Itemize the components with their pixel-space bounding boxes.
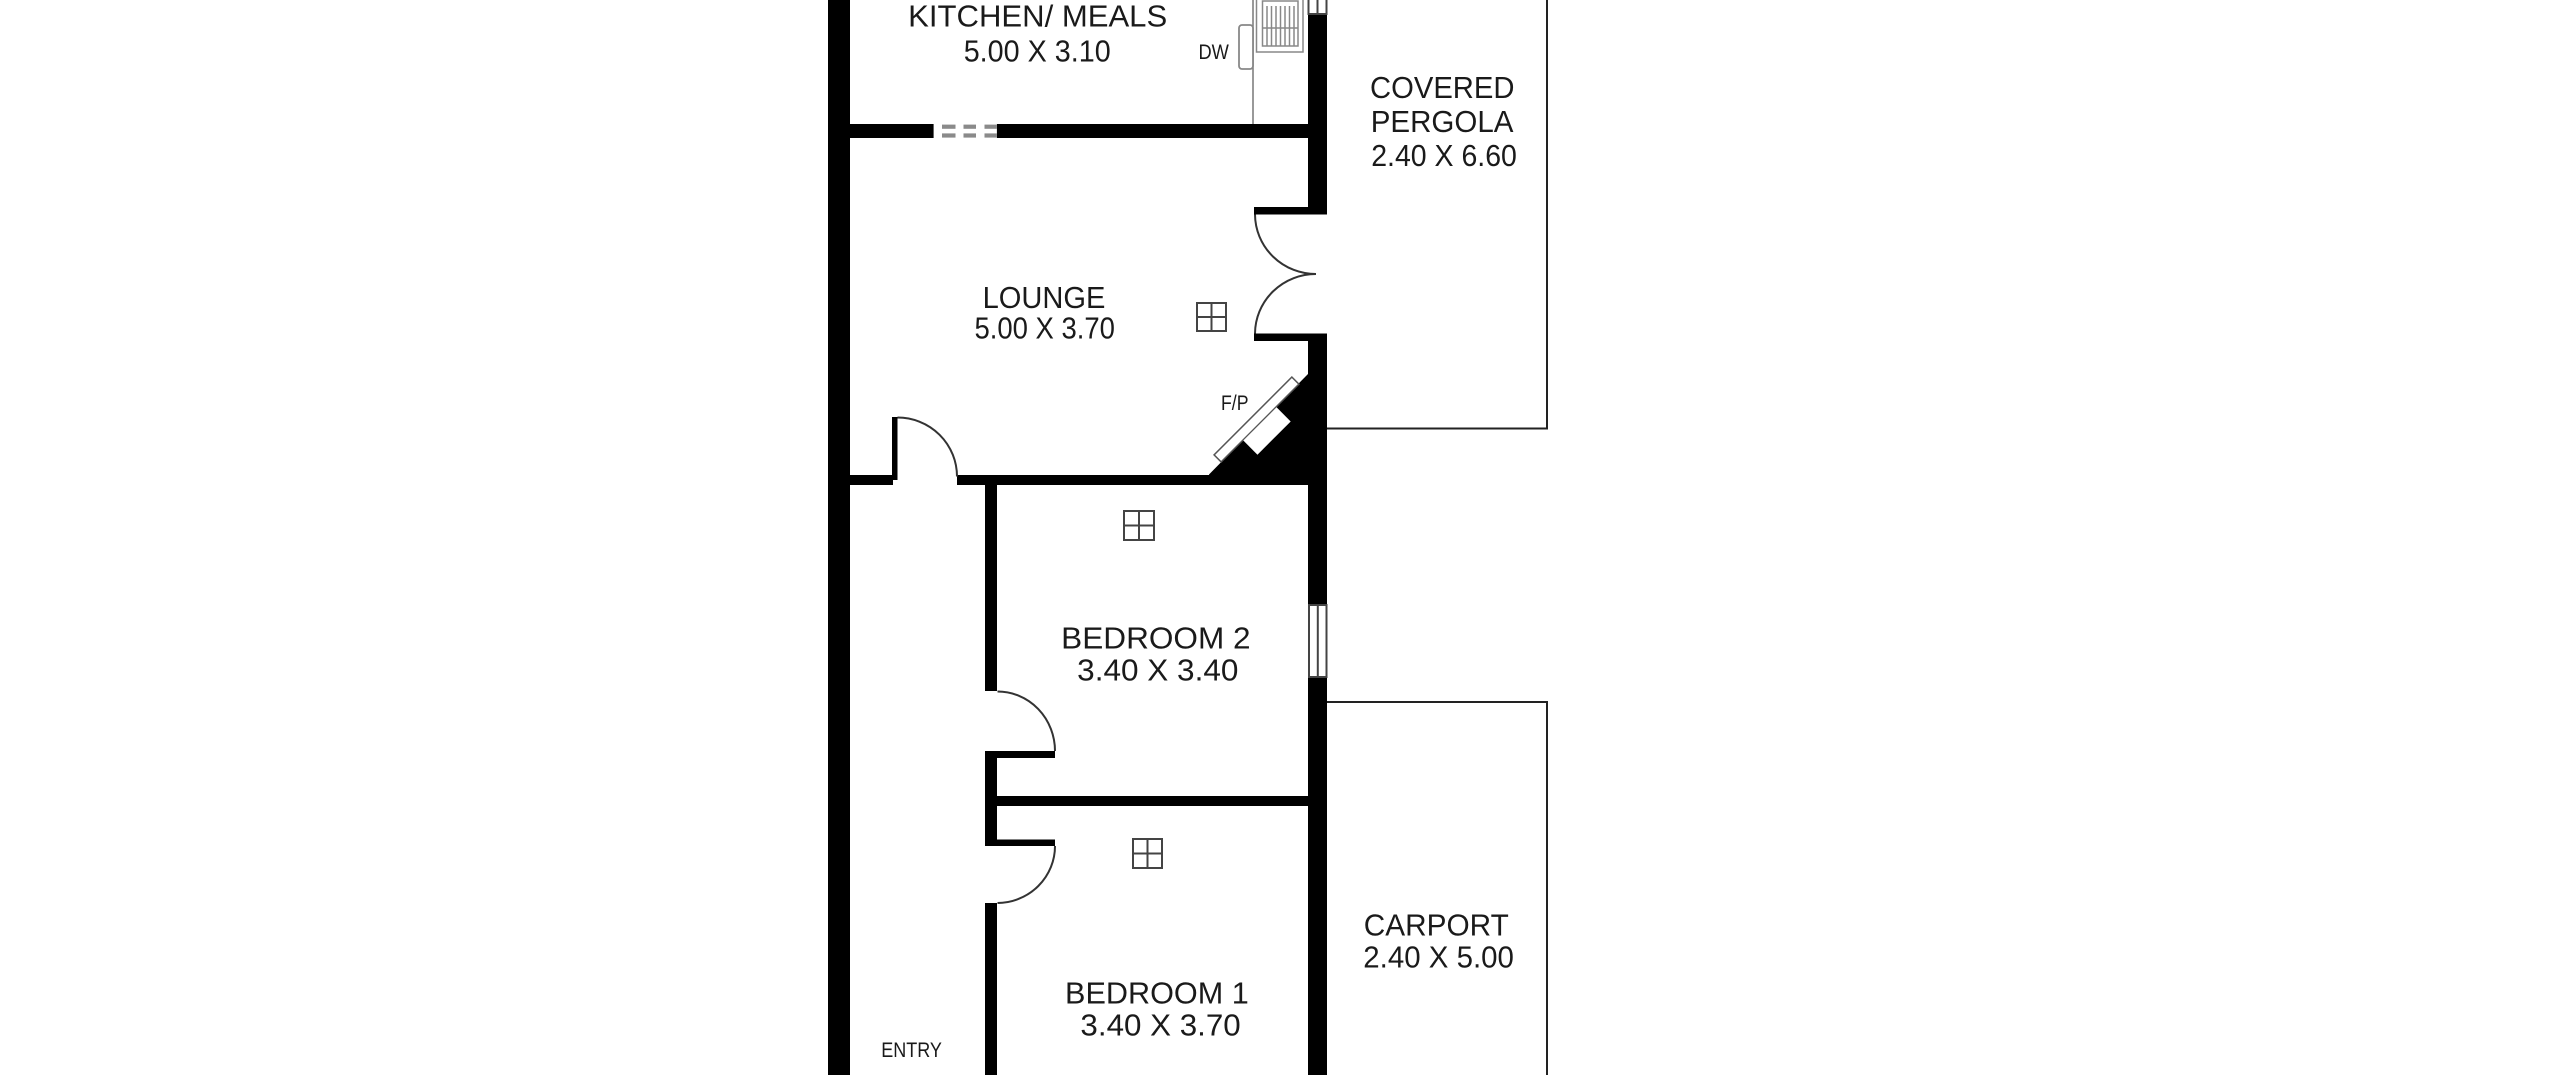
svg-text:2.40 X 6.60: 2.40 X 6.60 (1371, 138, 1517, 173)
svg-text:F/P: F/P (1221, 392, 1249, 415)
svg-text:2.40 X 5.00: 2.40 X 5.00 (1363, 940, 1514, 975)
svg-text:3.40 X 3.40: 3.40 X 3.40 (1077, 653, 1238, 688)
svg-text:3.40 X 3.70: 3.40 X 3.70 (1080, 1008, 1240, 1043)
svg-text:COVERED: COVERED (1370, 70, 1515, 105)
svg-text:PERGOLA: PERGOLA (1371, 104, 1514, 139)
svg-text:BEDROOM 1: BEDROOM 1 (1065, 976, 1249, 1011)
svg-text:BEDROOM 2: BEDROOM 2 (1061, 621, 1250, 656)
svg-text:CARPORT: CARPORT (1364, 908, 1509, 943)
svg-text:DW: DW (1199, 41, 1230, 64)
svg-text:5.00 X 3.10: 5.00 X 3.10 (964, 34, 1111, 69)
svg-text:ENTRY: ENTRY (881, 1039, 942, 1062)
svg-text:KITCHEN/ MEALS: KITCHEN/ MEALS (908, 0, 1167, 34)
svg-text:5.00 X 3.70: 5.00 X 3.70 (974, 311, 1115, 346)
